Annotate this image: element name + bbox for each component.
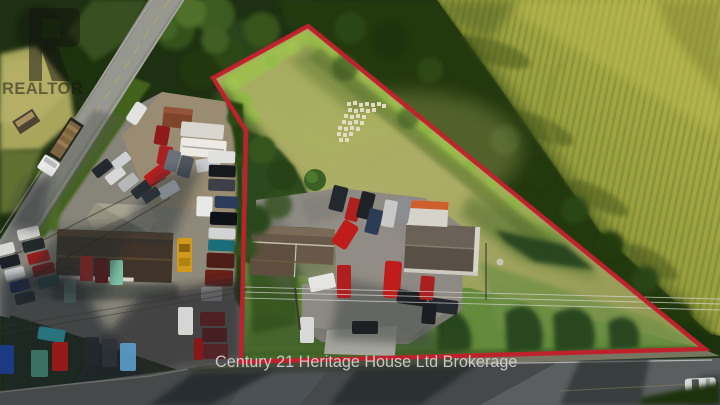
svg-text:REALTOR: REALTOR <box>2 80 83 98</box>
svg-text:Century 21 Heritage House Ltd: Century 21 Heritage House Ltd Brokerage <box>215 353 517 371</box>
svg-text:®: ® <box>75 79 81 88</box>
